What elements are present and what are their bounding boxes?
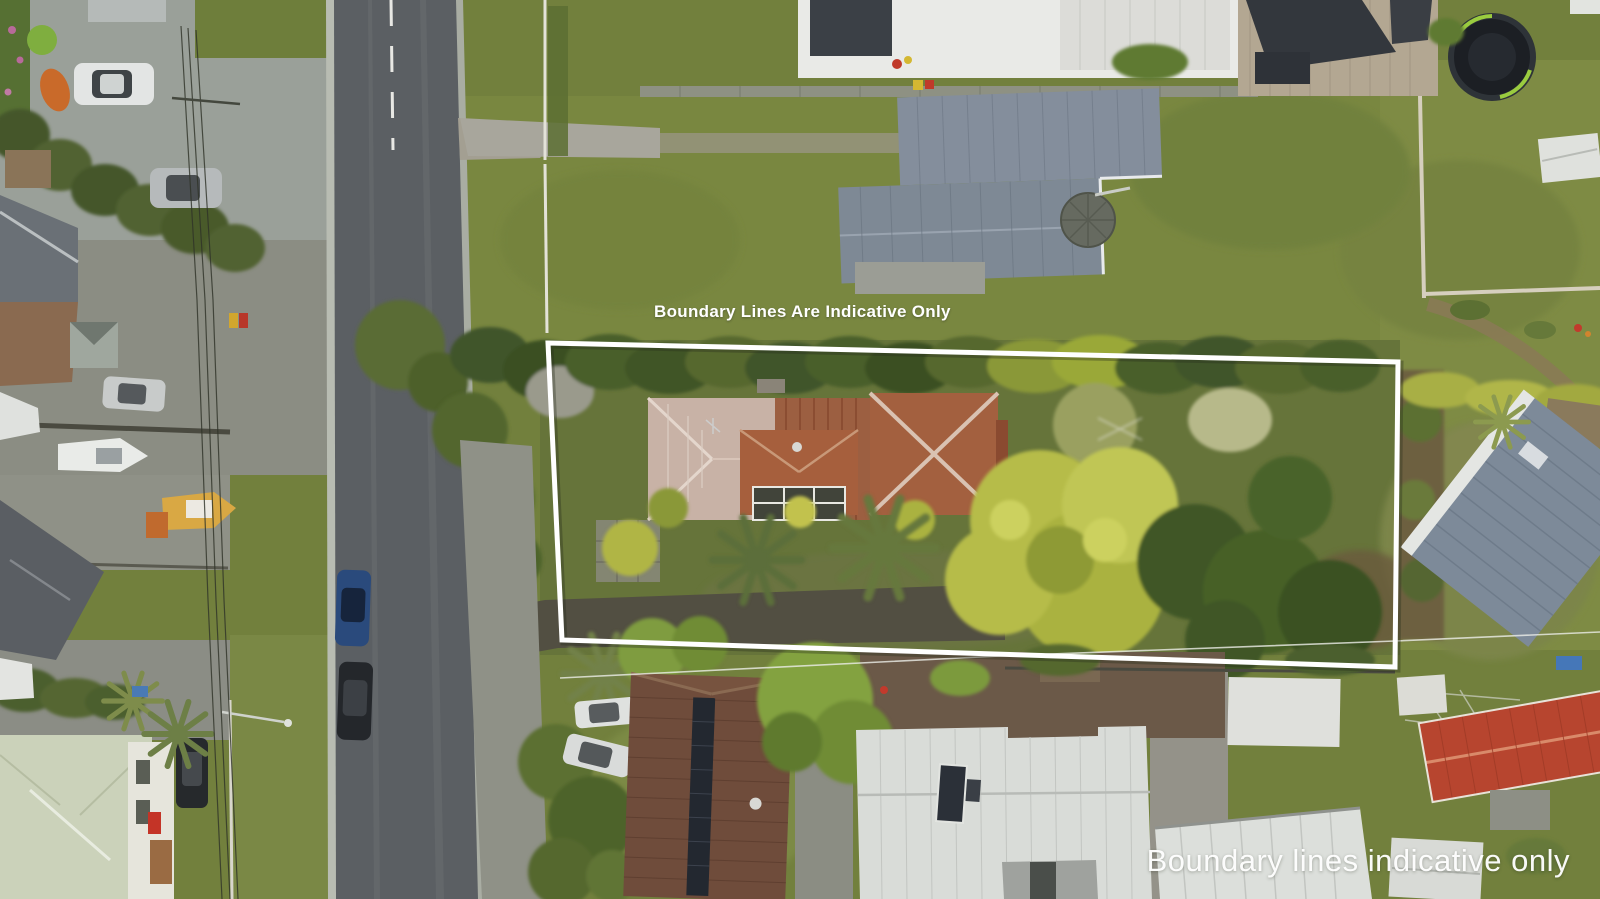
white-gable-roof — [1538, 133, 1600, 183]
aerial-photo: Boundary Lines Are Indicative Only Bound… — [0, 0, 1600, 899]
small-boat — [0, 658, 34, 700]
aerial-scene — [0, 0, 1600, 899]
dark-roof-panel — [810, 0, 892, 56]
wood-table — [150, 840, 172, 884]
green-bag — [27, 25, 57, 55]
satellite-dish — [792, 442, 802, 452]
orange-equipment — [146, 512, 168, 538]
patio-pad — [855, 262, 985, 294]
caption-boundary-indicative-top: Boundary Lines Are Indicative Only — [654, 302, 951, 322]
chimney — [757, 379, 785, 393]
blue-tarp — [1556, 656, 1582, 670]
charcoal-deck-house — [1238, 0, 1438, 96]
caption-boundary-indicative-bottom: Boundary lines indicative only — [1147, 843, 1570, 879]
small-white-shed — [1397, 674, 1448, 715]
black-sedan — [337, 661, 374, 740]
silver-car-driveway — [102, 376, 166, 412]
red-bins — [148, 812, 161, 834]
white-shed — [1227, 677, 1340, 747]
blue-tarp — [132, 686, 148, 697]
white-house-top — [798, 0, 1238, 80]
stone-wall — [640, 86, 1258, 97]
heritage-house — [648, 379, 1008, 520]
white-suv — [74, 63, 154, 105]
white-fence — [545, 164, 547, 333]
blue-sedan — [335, 569, 372, 646]
silver-hatchback — [150, 168, 222, 208]
